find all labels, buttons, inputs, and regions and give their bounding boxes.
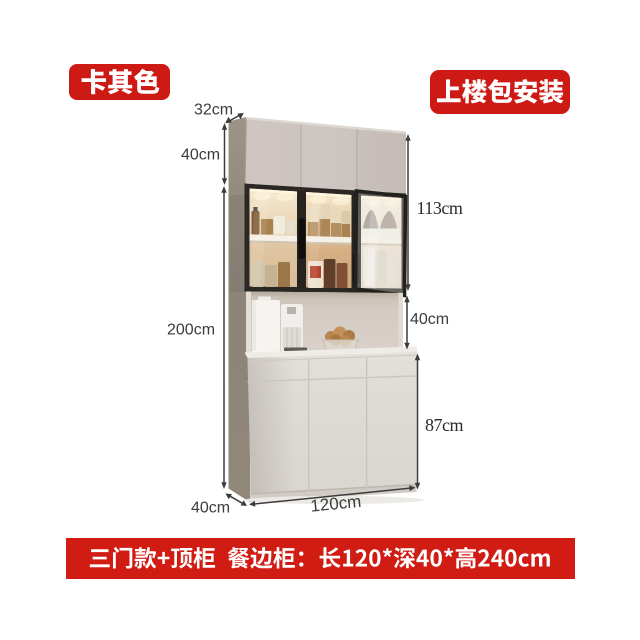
svg-text:87cm: 87cm (425, 415, 463, 435)
svg-text:32cm: 32cm (194, 101, 233, 118)
svg-text:200cm: 200cm (167, 321, 215, 338)
svg-text:40cm: 40cm (181, 147, 220, 164)
svg-text:40cm: 40cm (191, 500, 230, 517)
svg-text:40cm: 40cm (410, 311, 449, 328)
svg-text:113cm: 113cm (417, 198, 463, 218)
